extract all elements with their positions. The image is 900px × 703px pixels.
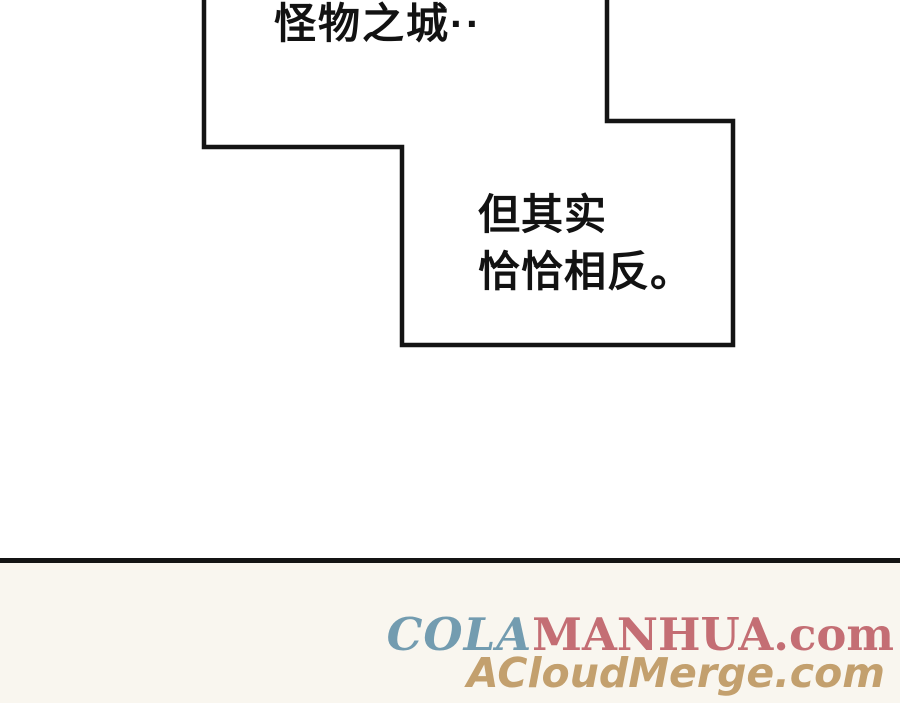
footer-strip: COLAMANHUA.com ACloudMerge.com (0, 563, 900, 703)
comic-page: 怪物之城·· 但其实 恰恰相反。 COLAMANHUA.com ACloudMe… (0, 0, 900, 703)
speech-bubble-1-text: 怪物之城·· (274, 1, 482, 47)
speech-bubble-2-text: 但其实 恰恰相反。 (478, 186, 693, 300)
speech-bubble-outline (0, 0, 900, 560)
speech-bubble-2-line-2: 恰恰相反。 (478, 243, 693, 300)
watermark-acloudmerge-text: ACloudMerge.com (467, 649, 885, 697)
watermark-acloudmerge: ACloudMerge.com (467, 653, 885, 694)
speech-bubble-2-line-1: 但其实 (478, 186, 693, 243)
